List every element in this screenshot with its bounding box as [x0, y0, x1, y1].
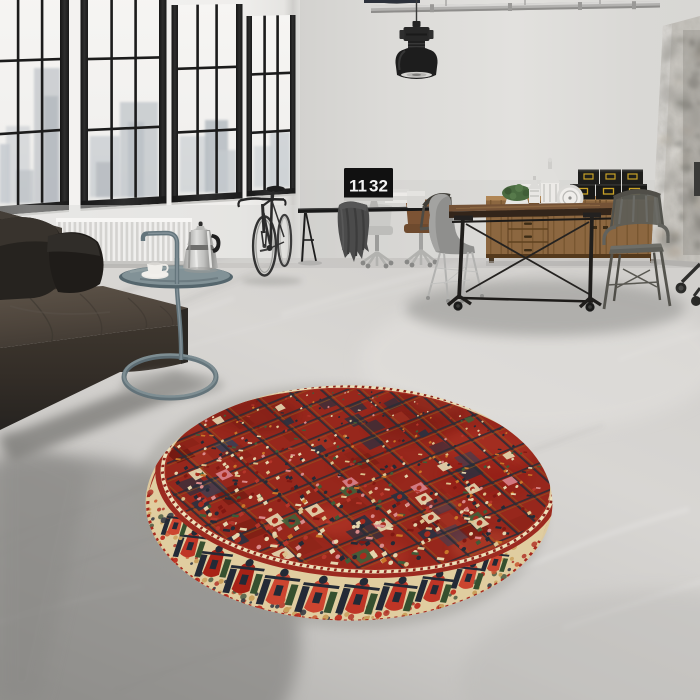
- svg-text:11: 11: [349, 177, 367, 196]
- svg-text:32: 32: [369, 177, 388, 196]
